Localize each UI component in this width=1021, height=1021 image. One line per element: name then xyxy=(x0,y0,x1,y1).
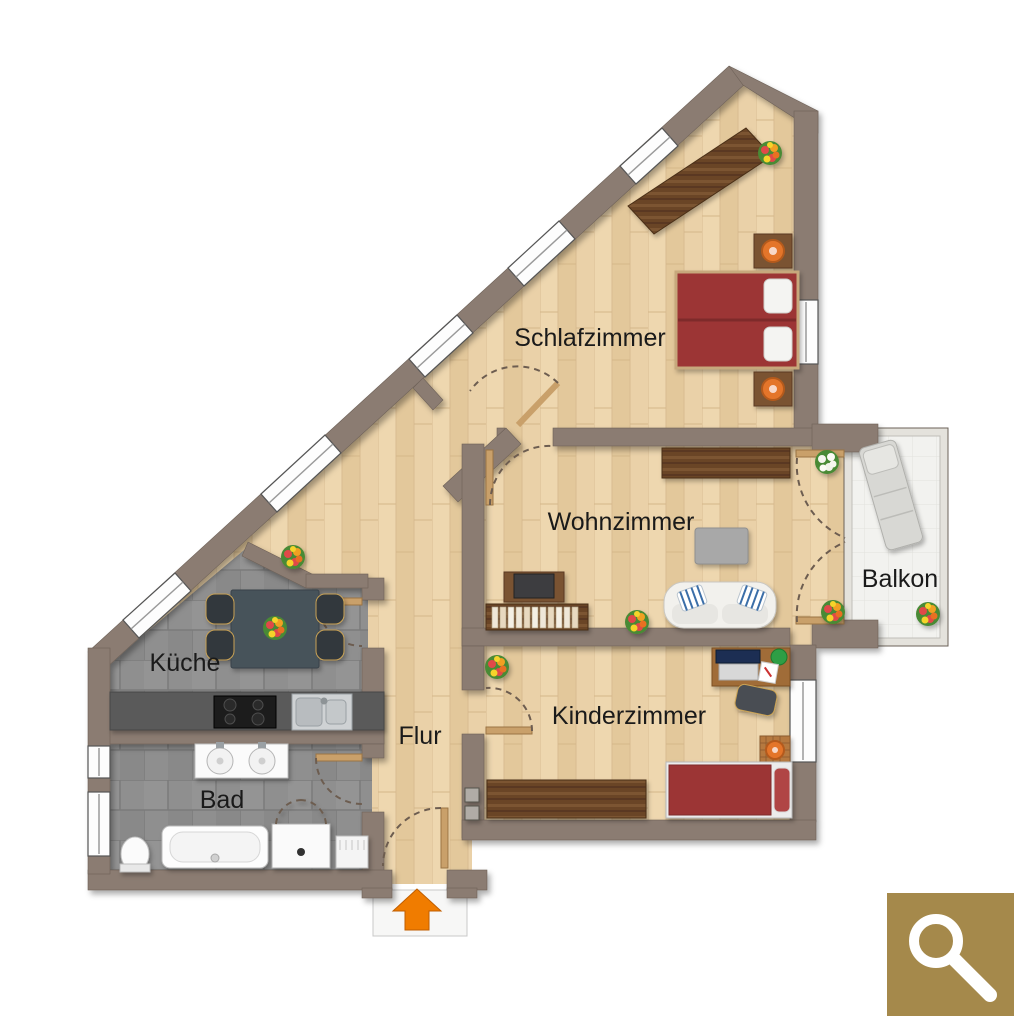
wall-flur-kinderzimmer-a xyxy=(462,646,484,690)
chair xyxy=(206,594,234,624)
faucet xyxy=(321,698,328,705)
burner xyxy=(224,699,236,711)
floor-plan-drawing: Schlafzimmer Wohnzimmer Balkon Küche Flu… xyxy=(0,0,1021,1021)
tv xyxy=(514,574,554,598)
stove xyxy=(214,696,276,728)
table-bouquet xyxy=(263,616,287,640)
shower-drain xyxy=(297,848,305,856)
wall-switch-1 xyxy=(465,788,479,802)
burner xyxy=(252,713,264,725)
wall-bad-right-a xyxy=(362,744,384,758)
plant-schlafzimmer xyxy=(758,141,782,165)
wohnzimmer-door-leaf xyxy=(486,450,493,505)
room-label-kueche: Küche xyxy=(150,649,221,677)
room-label-wohnzimmer: Wohnzimmer xyxy=(548,508,695,536)
pillow-bed-2 xyxy=(764,327,792,361)
plant-niche-top xyxy=(815,450,839,474)
room-label-schlafzimmer: Schlafzimmer xyxy=(514,324,665,352)
books xyxy=(492,607,578,628)
burner xyxy=(225,714,235,724)
paper-sheet xyxy=(758,662,778,684)
entrance-door-leaf xyxy=(441,808,448,868)
wall-wohnzimmer-kinderzimmer xyxy=(462,628,790,646)
burner xyxy=(253,700,263,710)
plant-kinderzimmer xyxy=(485,655,509,679)
shower xyxy=(272,824,330,868)
laptop-screen xyxy=(716,650,760,663)
room-label-kinderzimmer: Kinderzimmer xyxy=(552,702,706,730)
wall-bottom-left xyxy=(88,870,392,890)
wall-kueche-top-flat xyxy=(306,574,368,588)
bad-door-leaf xyxy=(316,754,362,761)
tub-drain xyxy=(211,854,219,862)
wall-switch-2 xyxy=(465,806,479,820)
wardrobe-kinderzimmer xyxy=(487,780,646,818)
wall-kinderzimmer-bottom xyxy=(462,820,816,840)
zoom-button[interactable] xyxy=(887,893,1014,1016)
room-label-flur: Flur xyxy=(398,722,441,750)
plant-wohnzimmer xyxy=(625,610,649,634)
single-bed-pillow xyxy=(774,768,790,812)
kinderzimmer-door-leaf xyxy=(486,727,532,734)
desk-lamp-green xyxy=(771,649,787,665)
plant-balkon xyxy=(916,602,940,626)
plant-niche-bottom xyxy=(821,600,845,624)
wall-flur-wohnzimmer xyxy=(462,444,484,646)
wall-entrance-tab-left xyxy=(362,888,392,898)
sideboard-wohnzimmer xyxy=(662,448,790,478)
faucet-right xyxy=(258,742,266,748)
faucet-left xyxy=(216,742,224,748)
room-label-balkon: Balkon xyxy=(862,565,938,593)
floor-plan-page: Schlafzimmer Wohnzimmer Balkon Küche Flu… xyxy=(0,0,1021,1021)
wall-schlafzimmer-bottom-b xyxy=(553,428,818,446)
coffee-table xyxy=(695,528,748,564)
toilet-tank xyxy=(120,864,150,872)
laptop-keyboard xyxy=(719,664,758,680)
single-bed-blanket xyxy=(669,765,771,815)
room-label-bad: Bad xyxy=(200,786,244,814)
chair xyxy=(316,630,344,660)
pillow-bed-1 xyxy=(764,279,792,313)
wall-bottom-right-stub xyxy=(447,870,487,890)
wall-entrance-tab-right xyxy=(447,888,477,898)
chair xyxy=(316,594,344,624)
plant-flur xyxy=(281,545,305,569)
